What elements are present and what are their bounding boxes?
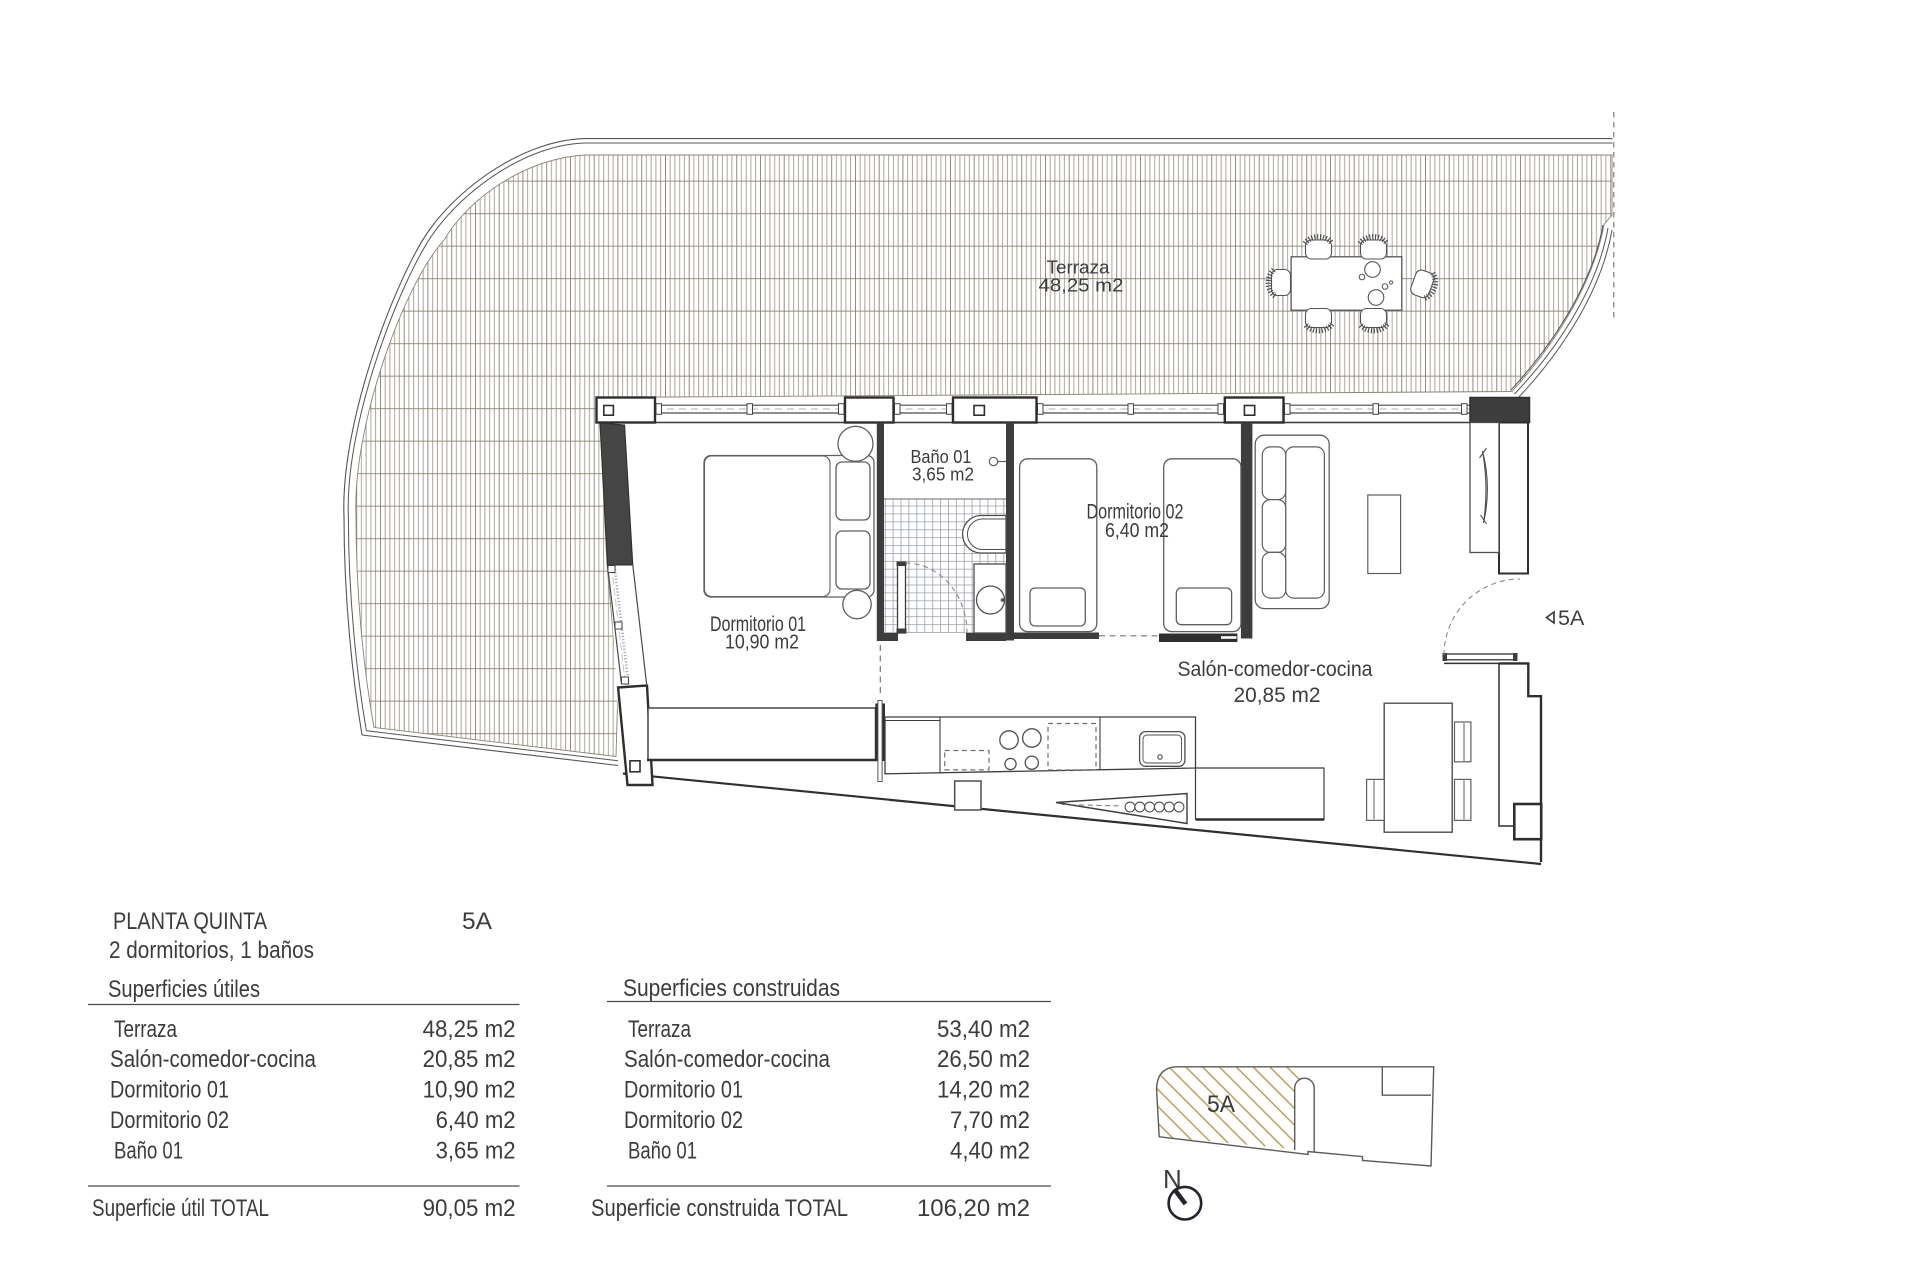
svg-text:48,25 m2: 48,25 m2 (1039, 275, 1124, 296)
svg-text:4,40 m2: 4,40 m2 (950, 1137, 1030, 1164)
svg-text:6,40 m2: 6,40 m2 (436, 1107, 516, 1134)
svg-text:Superficies útiles: Superficies útiles (108, 976, 260, 1003)
svg-text:Baño 01: Baño 01 (628, 1137, 697, 1164)
svg-text:20,85 m2: 20,85 m2 (423, 1046, 516, 1073)
svg-text:7,70 m2: 7,70 m2 (950, 1107, 1030, 1134)
svg-text:90,05 m2: 90,05 m2 (423, 1195, 516, 1222)
svg-text:Superficie útil TOTAL: Superficie útil TOTAL (92, 1195, 269, 1222)
svg-text:106,20 m2: 106,20 m2 (917, 1195, 1030, 1222)
svg-text:Dormitorio 01: Dormitorio 01 (110, 1077, 229, 1104)
svg-text:Salón-comedor-cocina: Salón-comedor-cocina (110, 1046, 316, 1073)
svg-text:PLANTA QUINTA: PLANTA QUINTA (113, 908, 268, 935)
svg-text:10,90 m2: 10,90 m2 (423, 1077, 516, 1104)
svg-text:Dormitorio 02: Dormitorio 02 (110, 1107, 229, 1134)
svg-text:20,85 m2: 20,85 m2 (1234, 684, 1321, 707)
svg-text:Dormitorio 02: Dormitorio 02 (624, 1107, 743, 1134)
svg-text:Salón-comedor-cocina: Salón-comedor-cocina (1178, 656, 1374, 681)
svg-text:5A: 5A (1207, 1091, 1235, 1118)
svg-text:53,40 m2: 53,40 m2 (937, 1016, 1030, 1043)
svg-text:5A: 5A (1558, 606, 1585, 630)
svg-text:Salón-comedor-cocina: Salón-comedor-cocina (624, 1046, 830, 1073)
svg-text:5A: 5A (462, 908, 493, 935)
svg-text:3,65 m2: 3,65 m2 (912, 463, 974, 484)
svg-text:Terraza: Terraza (628, 1016, 691, 1043)
svg-text:Baño 01: Baño 01 (114, 1137, 183, 1164)
svg-text:Terraza: Terraza (114, 1016, 177, 1043)
svg-text:2 dormitorios, 1 baños: 2 dormitorios, 1 baños (109, 937, 314, 964)
svg-text:48,25 m2: 48,25 m2 (423, 1016, 516, 1043)
svg-text:Superficies construidas: Superficies construidas (623, 975, 840, 1002)
svg-text:26,50 m2: 26,50 m2 (937, 1046, 1030, 1073)
svg-text:14,20 m2: 14,20 m2 (937, 1077, 1030, 1104)
svg-text:3,65 m2: 3,65 m2 (436, 1137, 516, 1164)
svg-text:Dormitorio 01: Dormitorio 01 (624, 1077, 743, 1104)
svg-text:6,40 m2: 6,40 m2 (1105, 520, 1169, 542)
svg-text:Superficie construida TOTAL: Superficie construida TOTAL (591, 1195, 848, 1222)
svg-text:10,90 m2: 10,90 m2 (725, 631, 799, 654)
